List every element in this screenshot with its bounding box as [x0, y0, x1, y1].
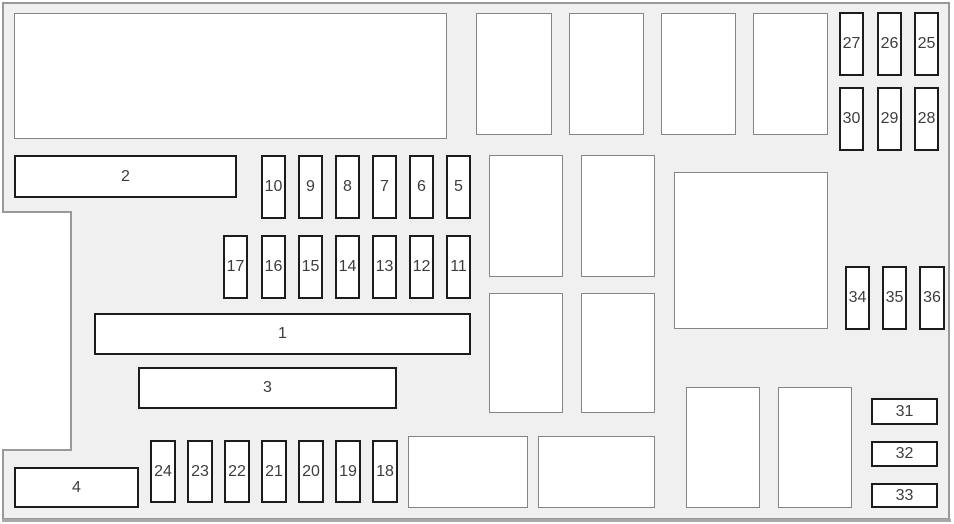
fuse-25: 25 — [914, 12, 939, 76]
fuse-22: 22 — [224, 440, 250, 503]
fuse-11: 11 — [446, 235, 471, 299]
relay-slot-mid-3 — [489, 293, 563, 413]
fuse-box-diagram: 2134109876517161514131211242322212019182… — [0, 0, 954, 524]
relay-slot-top-4 — [753, 13, 828, 135]
fuse-33: 33 — [871, 483, 938, 508]
fuse-23: 23 — [187, 440, 213, 503]
slot-number-label: 7 — [380, 179, 389, 195]
slot-number-label: 19 — [339, 464, 357, 480]
relay-slot-top-1 — [476, 13, 552, 135]
module-slot-square — [674, 172, 828, 329]
slot-number-label: 12 — [413, 259, 431, 275]
slot-number-label: 36 — [923, 290, 941, 306]
fuse-31: 31 — [871, 398, 938, 425]
slot-number-label: 28 — [918, 111, 936, 127]
slot-number-label: 22 — [228, 464, 246, 480]
fuse-36: 36 — [919, 266, 945, 330]
relay-slot-mid-1 — [489, 155, 563, 277]
relay-slot-bottom-2 — [778, 387, 852, 508]
fuse-35: 35 — [882, 266, 907, 330]
fuse-strip-3: 3 — [138, 367, 397, 409]
fuse-21: 21 — [261, 440, 287, 503]
fuse-30: 30 — [839, 87, 864, 151]
fuse-16: 16 — [261, 235, 286, 299]
slot-number-label: 2 — [121, 169, 130, 185]
slot-number-label: 5 — [454, 179, 463, 195]
slot-number-label: 33 — [896, 488, 914, 504]
fuse-strip-1: 1 — [94, 313, 471, 355]
fuse-6: 6 — [409, 155, 434, 219]
fuse-13: 13 — [372, 235, 397, 299]
slot-number-label: 8 — [343, 179, 352, 195]
fuse-14: 14 — [335, 235, 360, 299]
fuse-12: 12 — [409, 235, 434, 299]
slot-number-label: 11 — [450, 259, 467, 275]
fuse-boxes: 2134109876517161514131211242322212019182… — [0, 0, 954, 524]
slot-number-label: 3 — [263, 380, 272, 396]
slot-number-label: 16 — [265, 259, 283, 275]
slot-number-label: 27 — [843, 36, 861, 52]
slot-number-label: 17 — [227, 259, 245, 275]
fuse-7: 7 — [372, 155, 397, 219]
slot-number-label: 20 — [302, 464, 320, 480]
fuse-strip-2: 2 — [14, 155, 237, 198]
slot-number-label: 14 — [339, 259, 357, 275]
fuse-9: 9 — [298, 155, 323, 219]
slot-number-label: 32 — [896, 446, 914, 462]
fuse-26: 26 — [877, 12, 902, 76]
relay-slot-mid-4 — [581, 293, 655, 413]
slot-number-label: 4 — [72, 480, 81, 496]
slot-number-label: 10 — [265, 179, 283, 195]
fuse-10: 10 — [261, 155, 286, 219]
module-slot-bottom-2 — [538, 436, 655, 508]
slot-number-label: 35 — [886, 290, 904, 306]
fuse-20: 20 — [298, 440, 324, 503]
relay-slot-bottom-1 — [686, 387, 760, 508]
fuse-8: 8 — [335, 155, 360, 219]
slot-number-label: 9 — [306, 179, 315, 195]
fuse-24: 24 — [150, 440, 176, 503]
module-slot-bottom-1 — [408, 436, 528, 508]
slot-number-label: 6 — [417, 179, 426, 195]
slot-number-label: 29 — [881, 111, 899, 127]
fuse-15: 15 — [298, 235, 323, 299]
fuse-34: 34 — [845, 266, 870, 330]
fuse-18: 18 — [372, 440, 398, 503]
slot-number-label: 23 — [191, 464, 209, 480]
fuse-28: 28 — [914, 87, 939, 151]
slot-number-label: 25 — [918, 36, 936, 52]
slot-number-label: 26 — [881, 36, 899, 52]
slot-number-label: 24 — [154, 464, 172, 480]
fuse-32: 32 — [871, 441, 938, 467]
fuse-5: 5 — [446, 155, 471, 219]
fuse-19: 19 — [335, 440, 361, 503]
relay-slot-top-3 — [661, 13, 736, 135]
fuse-29: 29 — [877, 87, 902, 151]
fuse-strip-4: 4 — [14, 467, 139, 508]
slot-number-label: 18 — [376, 464, 394, 480]
relay-slot-top-2 — [569, 13, 644, 135]
slot-number-label: 13 — [376, 259, 394, 275]
slot-number-label: 15 — [302, 259, 320, 275]
slot-number-label: 1 — [278, 326, 287, 342]
slot-number-label: 30 — [843, 111, 861, 127]
slot-number-label: 34 — [849, 290, 867, 306]
module-slot-top-left — [14, 13, 447, 139]
fuse-27: 27 — [839, 12, 864, 76]
relay-slot-mid-2 — [581, 155, 655, 277]
slot-number-label: 21 — [265, 464, 283, 480]
fuse-17: 17 — [223, 235, 248, 299]
slot-number-label: 31 — [896, 404, 914, 420]
